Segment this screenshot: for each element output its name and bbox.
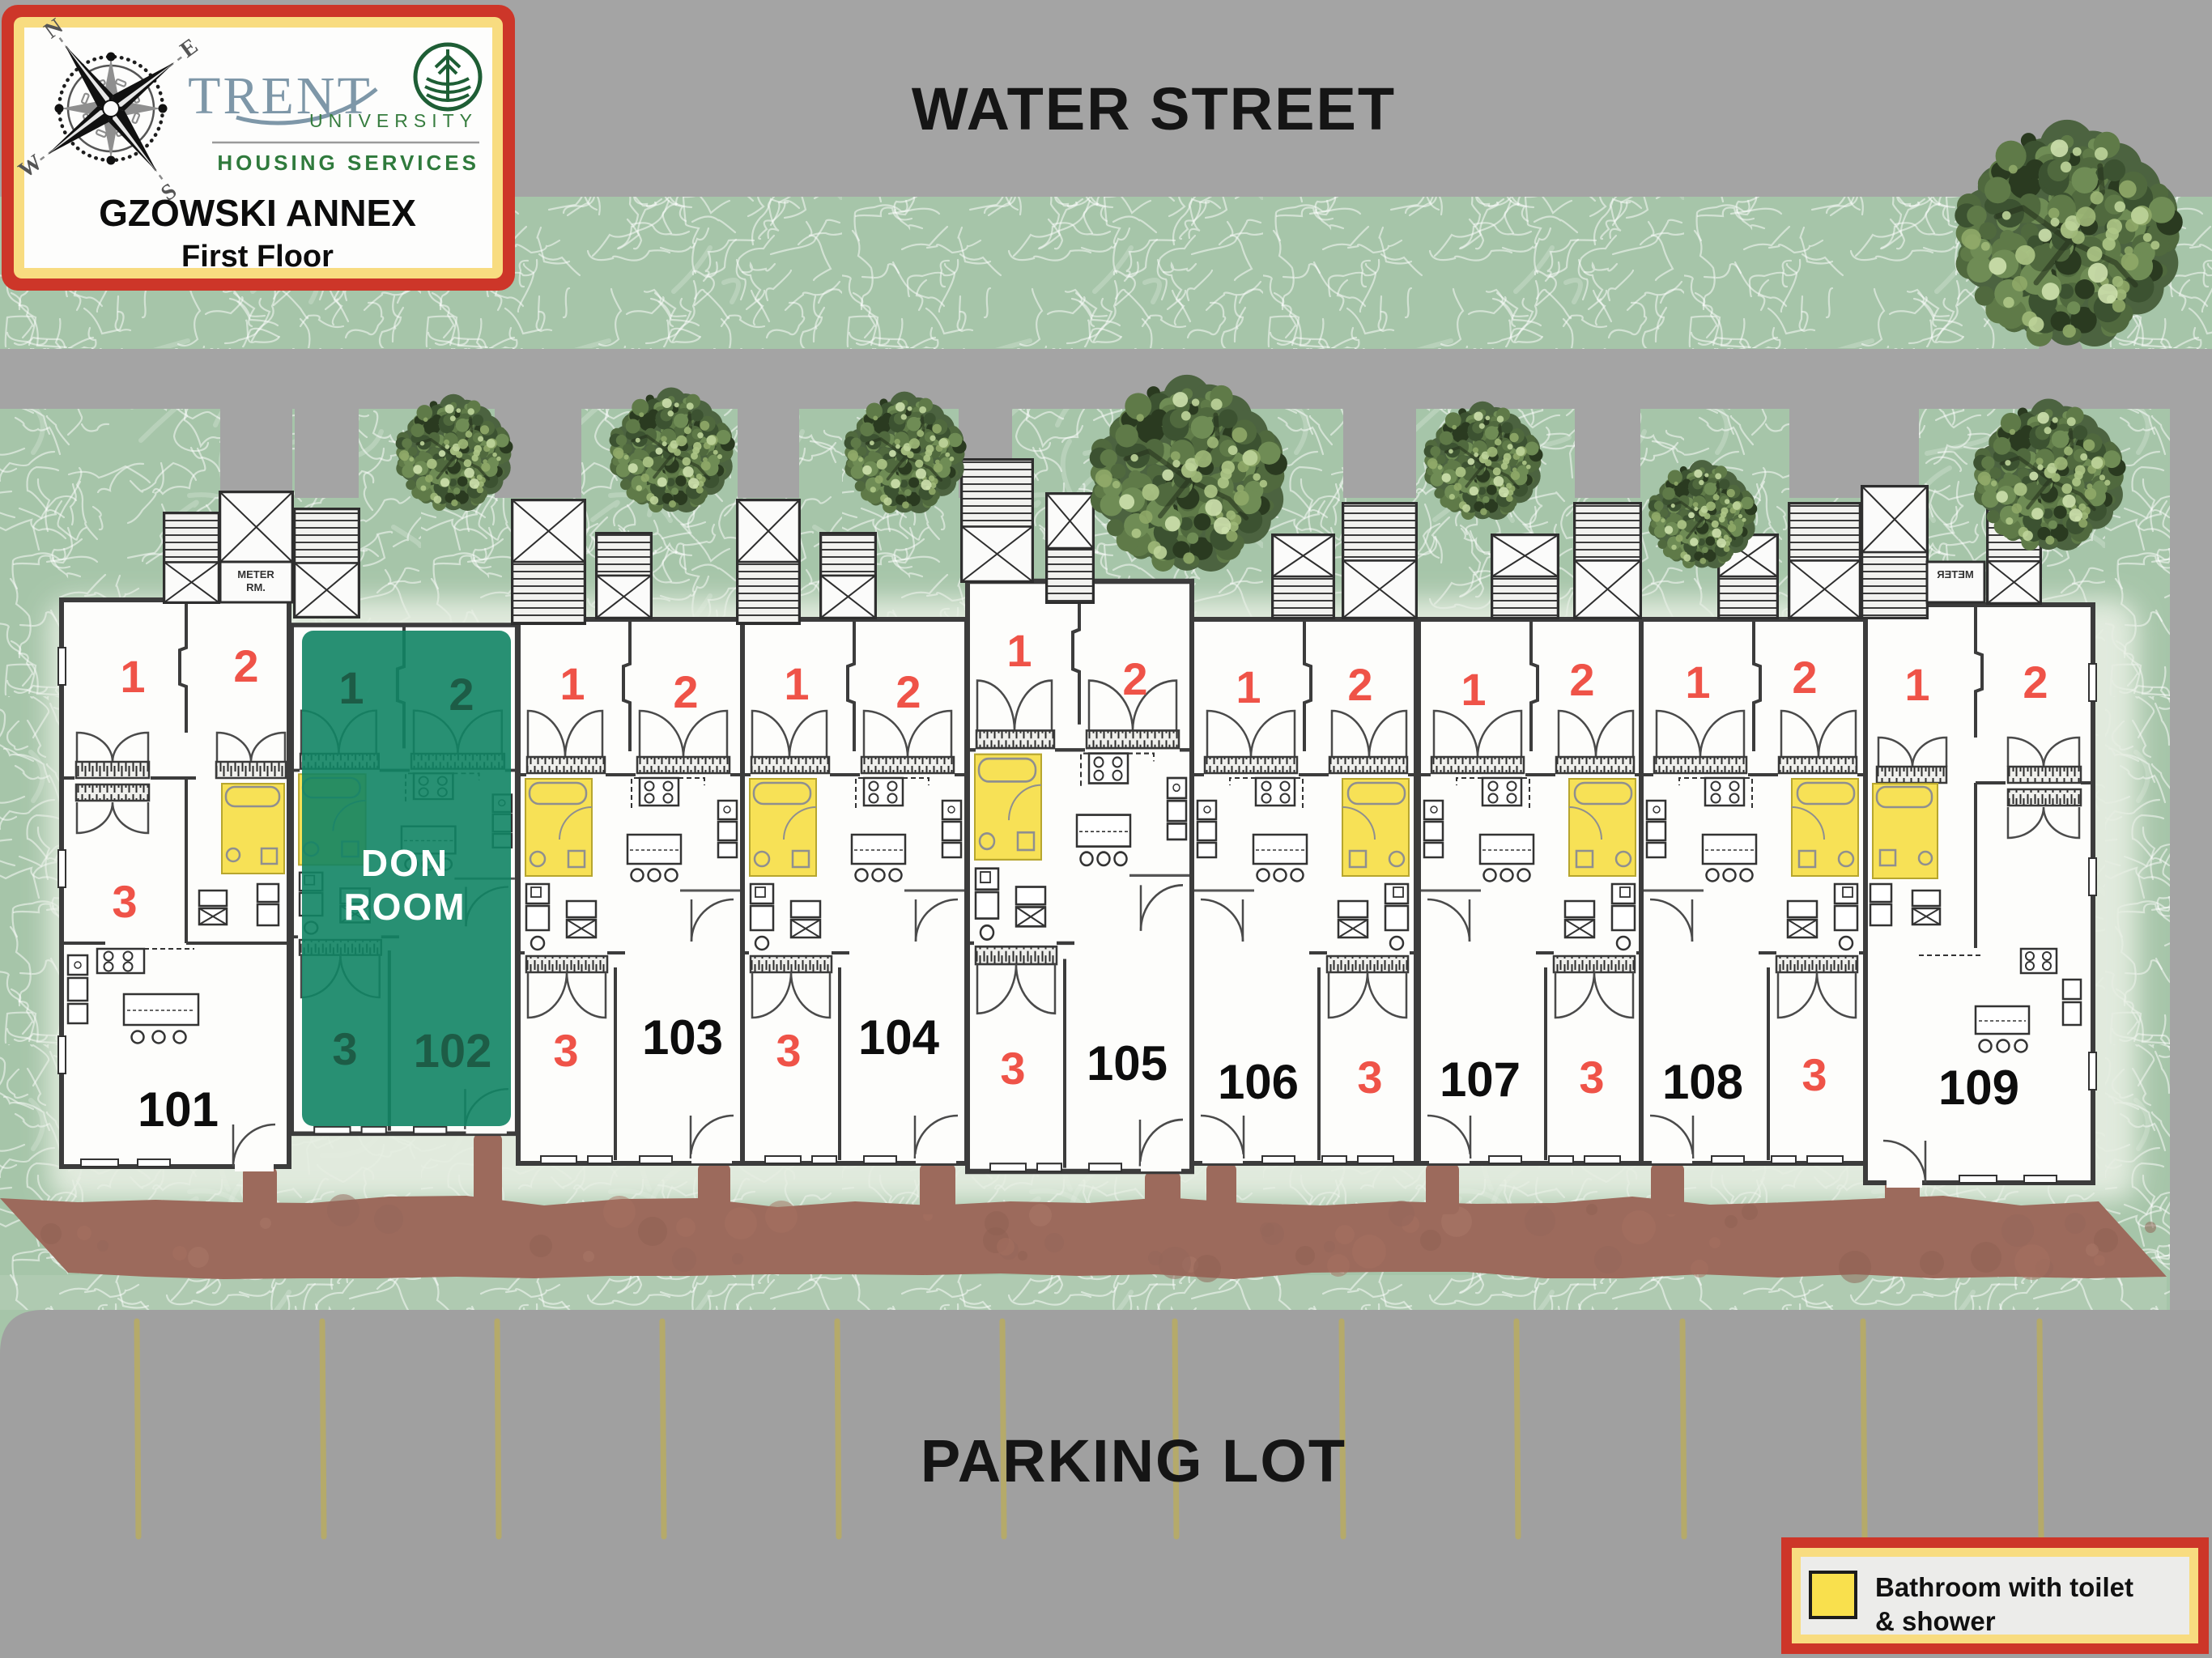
svg-text:1: 1 — [1904, 659, 1929, 710]
svg-text:& shower: & shower — [1875, 1606, 1996, 1636]
svg-text:104: 104 — [858, 1010, 940, 1065]
svg-text:3: 3 — [1579, 1052, 1604, 1103]
svg-text:3: 3 — [112, 876, 137, 927]
svg-text:2: 2 — [1792, 652, 1817, 703]
svg-text:3: 3 — [332, 1023, 357, 1074]
svg-text:HOUSING SERVICES: HOUSING SERVICES — [217, 151, 479, 175]
svg-text:2: 2 — [2023, 657, 2048, 708]
svg-text:ROOM: ROOM — [343, 886, 466, 928]
svg-text:3: 3 — [1802, 1049, 1827, 1100]
svg-text:108: 108 — [1662, 1055, 1743, 1109]
svg-text:WATER STREET: WATER STREET — [912, 75, 1396, 142]
svg-text:2: 2 — [449, 669, 474, 720]
svg-text:2: 2 — [1569, 654, 1594, 705]
svg-text:DON: DON — [361, 842, 449, 884]
svg-text:1: 1 — [1006, 625, 1032, 676]
svg-text:UNIVERSITY: UNIVERSITY — [309, 110, 478, 131]
svg-text:3: 3 — [553, 1025, 578, 1076]
svg-text:2: 2 — [233, 640, 258, 691]
svg-text:3: 3 — [1000, 1043, 1025, 1094]
svg-text:106: 106 — [1218, 1055, 1299, 1109]
svg-text:101: 101 — [138, 1082, 219, 1137]
svg-text:First Floor: First Floor — [181, 240, 334, 274]
svg-text:107: 107 — [1440, 1052, 1521, 1107]
svg-text:2: 2 — [895, 666, 921, 717]
svg-text:2: 2 — [673, 666, 698, 717]
svg-text:105: 105 — [1087, 1036, 1168, 1090]
svg-text:1: 1 — [1236, 661, 1261, 712]
svg-text:2: 2 — [1122, 653, 1147, 704]
svg-text:1: 1 — [784, 658, 809, 709]
svg-text:1: 1 — [120, 651, 145, 702]
svg-text:2: 2 — [1347, 659, 1372, 710]
svg-text:1: 1 — [559, 658, 585, 709]
svg-text:GZOWSKI ANNEX: GZOWSKI ANNEX — [99, 192, 416, 234]
svg-text:METER: METER — [1937, 568, 1974, 580]
svg-text:102: 102 — [414, 1025, 492, 1078]
svg-text:RM.: RM. — [246, 581, 266, 593]
svg-text:103: 103 — [642, 1010, 723, 1065]
svg-text:Bathroom with toilet: Bathroom with toilet — [1875, 1572, 2133, 1602]
svg-text:3: 3 — [776, 1025, 801, 1076]
svg-text:1: 1 — [1461, 664, 1486, 715]
svg-text:PARKING LOT: PARKING LOT — [921, 1427, 1346, 1494]
svg-text:109: 109 — [1938, 1061, 2019, 1115]
svg-text:1: 1 — [1685, 657, 1710, 708]
svg-text:METER: METER — [237, 568, 274, 580]
svg-text:3: 3 — [1357, 1052, 1382, 1103]
svg-text:1: 1 — [338, 662, 364, 713]
